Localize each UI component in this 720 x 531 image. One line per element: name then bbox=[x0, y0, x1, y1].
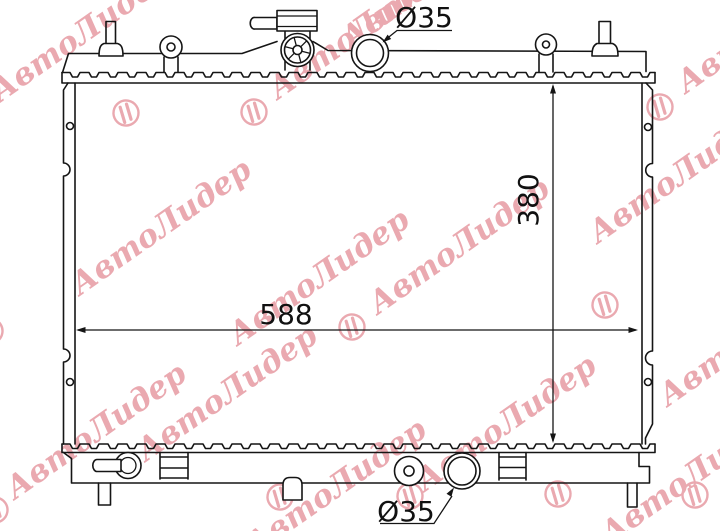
right-bracket-outer-edge bbox=[646, 83, 653, 444]
watermark-logo-icon bbox=[588, 288, 623, 323]
left-bracket-hole-bottom bbox=[67, 379, 74, 386]
watermark-logo-icon bbox=[109, 96, 144, 131]
drain-cock bbox=[93, 453, 141, 479]
bottom-bracket-left bbox=[160, 453, 188, 480]
right-mount-ring bbox=[536, 34, 557, 55]
top-left-pin-base bbox=[99, 44, 123, 57]
right-bracket-hole-bottom bbox=[645, 379, 652, 386]
radiator-cap-hub bbox=[293, 46, 302, 55]
right-ring-legs bbox=[539, 54, 553, 72]
inlet-port bbox=[352, 35, 389, 72]
top-right-pin-stem bbox=[599, 22, 611, 44]
watermark-logo-icon bbox=[0, 314, 7, 349]
width-arrow-left bbox=[76, 327, 86, 333]
width-arrow-right bbox=[629, 327, 639, 333]
watermark-logo-icon bbox=[335, 310, 370, 345]
left-ring-legs bbox=[164, 57, 178, 72]
watermark-text: АвтоЛидер bbox=[407, 347, 603, 499]
watermark-logo-icon bbox=[643, 90, 678, 125]
drain-plug-boss bbox=[395, 457, 424, 486]
height-dim-label: 380 bbox=[512, 173, 545, 226]
height-arrow-up bbox=[550, 84, 556, 94]
watermark-text: АвтоЛидер bbox=[650, 262, 720, 414]
watermark-text: АвтоЛидер bbox=[580, 99, 720, 251]
outlet-port bbox=[444, 453, 480, 489]
cap-housing bbox=[277, 11, 317, 32]
left-bracket bbox=[64, 83, 76, 444]
overflow-pipe bbox=[250, 17, 277, 29]
bottom-center-foot bbox=[283, 478, 302, 501]
watermark-logo-icon bbox=[0, 493, 12, 528]
watermark-layer: АвтоЛидерАвтоЛидерАвтоЛидерАвтоЛидерАвто… bbox=[0, 0, 720, 531]
watermark-text: АвтоЛидер bbox=[62, 151, 258, 303]
top-port-label: Ø35 bbox=[395, 1, 453, 34]
outlet-port-outer bbox=[444, 453, 480, 489]
top-core-strip-serration bbox=[62, 73, 655, 78]
bottom-bracket-right bbox=[499, 453, 526, 481]
right-bracket bbox=[642, 83, 653, 444]
width-dim-label: 588 bbox=[259, 298, 312, 331]
radiator-technical-drawing: АвтоЛидерАвтоЛидерАвтоЛидерАвтоЛидерАвто… bbox=[0, 0, 720, 531]
watermark-logo-icon bbox=[541, 477, 576, 512]
right-bracket-hole-top bbox=[645, 124, 652, 131]
bottom-port-arrow bbox=[447, 488, 455, 497]
watermark-logo-icon bbox=[237, 95, 272, 130]
watermark-text: АвтоЛидер bbox=[0, 0, 179, 111]
watermark-text: АвтоЛидер bbox=[592, 400, 720, 531]
watermark-text: АвтоЛидер bbox=[668, 0, 720, 102]
height-arrow-down bbox=[550, 434, 556, 444]
drawing-canvas: АвтоЛидерАвтоЛидерАвтоЛидерАвтоЛидерАвто… bbox=[0, 0, 720, 531]
left-bracket-hole-top bbox=[67, 123, 74, 130]
drain-pipe bbox=[93, 460, 121, 472]
bottom-port-callout: Ø35 bbox=[377, 488, 454, 529]
left-mount-ring bbox=[160, 36, 182, 58]
top-right-pin-base bbox=[592, 44, 618, 57]
left-bracket-outer-edge bbox=[64, 83, 71, 444]
bottom-left-mount-pin bbox=[99, 483, 111, 505]
